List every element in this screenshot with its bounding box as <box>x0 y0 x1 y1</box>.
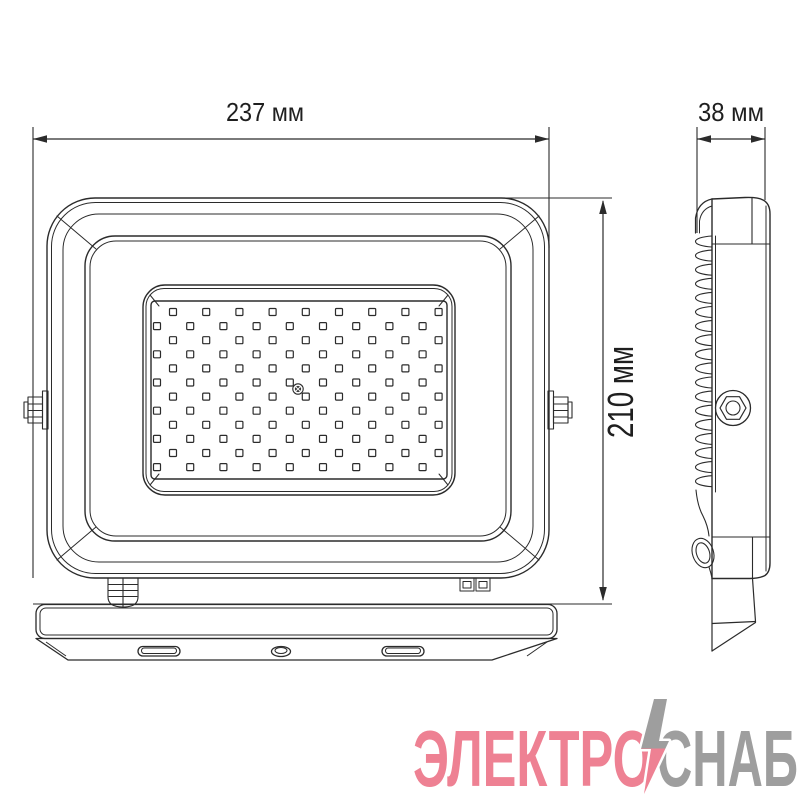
led-chip <box>154 435 161 442</box>
led-chip <box>236 365 243 372</box>
heatsink-fin <box>696 349 713 360</box>
led-chip <box>419 379 426 386</box>
heatsink-fin <box>696 292 713 303</box>
arrowhead-left-icon <box>33 135 47 143</box>
led-chip <box>302 337 309 344</box>
side-housing-outline <box>712 197 770 578</box>
led-chip <box>154 379 161 386</box>
led-chip <box>154 464 161 471</box>
heatsink-fin <box>696 377 713 388</box>
led-chip <box>369 309 376 316</box>
led-chip <box>286 464 293 471</box>
led-chip <box>302 421 309 428</box>
led-chip <box>435 337 442 344</box>
led-chip <box>253 351 260 358</box>
led-chip <box>203 450 210 457</box>
led-chip <box>353 379 360 386</box>
heatsink-fin <box>696 462 713 473</box>
depth-dimension-label: 38 мм <box>698 97 764 127</box>
led-chip <box>386 351 393 358</box>
heatsink-fin <box>696 307 713 318</box>
led-chip <box>419 435 426 442</box>
led-chip <box>302 450 309 457</box>
led-chip <box>269 421 276 428</box>
led-chip <box>353 351 360 358</box>
led-chip <box>187 435 194 442</box>
led-chip <box>220 323 227 330</box>
led-chip <box>402 365 409 372</box>
led-chip <box>154 407 161 414</box>
led-chip <box>253 323 260 330</box>
led-chip <box>220 435 227 442</box>
led-chip <box>435 450 442 457</box>
led-chip <box>236 309 243 316</box>
led-chip <box>269 450 276 457</box>
led-chip <box>369 393 376 400</box>
led-chip <box>187 379 194 386</box>
led-chip <box>286 435 293 442</box>
led-chip <box>170 450 177 457</box>
led-chip <box>236 421 243 428</box>
led-chip <box>402 450 409 457</box>
knob-left <box>24 391 48 429</box>
led-chip <box>220 464 227 471</box>
led-chip <box>187 351 194 358</box>
led-chip <box>320 323 327 330</box>
terminal-clip <box>460 578 490 591</box>
heatsink-fin <box>696 278 713 289</box>
led-chip <box>369 421 376 428</box>
led-chip <box>320 464 327 471</box>
led-chip <box>369 365 376 372</box>
led-chip <box>369 450 376 457</box>
bracket-base <box>36 605 557 661</box>
led-chip <box>286 379 293 386</box>
led-chip <box>386 323 393 330</box>
led-chip <box>154 351 161 358</box>
center-screw <box>293 384 303 394</box>
led-chip <box>236 337 243 344</box>
arrowhead-right-icon <box>751 135 765 143</box>
led-chip <box>269 393 276 400</box>
led-chip <box>170 393 177 400</box>
heatsink-fin <box>696 321 713 332</box>
height-dimension-label: 210 мм <box>600 346 641 438</box>
arrowhead-right-icon <box>535 135 549 143</box>
led-chip <box>419 323 426 330</box>
led-chip <box>386 379 393 386</box>
led-chip <box>336 365 343 372</box>
heatsink-fin <box>696 419 713 430</box>
led-chip <box>402 393 409 400</box>
knob-right <box>548 391 572 429</box>
watermark-logo: ЭЛЕКТРО СНАБ <box>413 699 798 800</box>
led-chip <box>203 421 210 428</box>
led-chip <box>302 393 309 400</box>
led-chip <box>203 309 210 316</box>
led-chip <box>187 407 194 414</box>
led-chip <box>154 323 161 330</box>
heatsink-fin <box>696 433 713 444</box>
arrowhead-left-icon <box>697 135 711 143</box>
heatsink-fin <box>696 264 713 275</box>
led-chip <box>269 309 276 316</box>
led-chip <box>353 323 360 330</box>
led-module <box>143 285 455 495</box>
led-chip <box>253 379 260 386</box>
heatsink-fin <box>696 448 713 459</box>
arrowhead-down-icon <box>599 587 607 601</box>
cable-gland <box>108 578 138 607</box>
dimension-width: 237 мм <box>33 97 549 143</box>
led-chip <box>353 464 360 471</box>
led-chip <box>435 421 442 428</box>
led-chip <box>170 337 177 344</box>
led-chip <box>336 337 343 344</box>
led-chip <box>402 309 409 316</box>
led-chip <box>220 407 227 414</box>
led-chip <box>170 421 177 428</box>
led-chip <box>170 365 177 372</box>
dimension-depth: 38 мм <box>697 97 765 143</box>
led-chip <box>236 393 243 400</box>
led-chip <box>203 337 210 344</box>
width-dimension-label: 237 мм <box>226 97 304 127</box>
heatsink-fin <box>696 405 713 416</box>
led-chip <box>236 450 243 457</box>
led-chip <box>170 309 177 316</box>
side-view <box>688 197 770 651</box>
side-hex-knob <box>716 391 751 426</box>
led-chip <box>302 309 309 316</box>
front-view <box>24 198 572 607</box>
led-chip <box>187 464 194 471</box>
arrowhead-up-icon <box>599 200 607 214</box>
led-chip <box>320 379 327 386</box>
heatsink-fin <box>696 335 713 346</box>
led-chip <box>386 407 393 414</box>
bracket-front-lip <box>36 639 557 661</box>
led-chip <box>203 393 210 400</box>
led-chip <box>402 421 409 428</box>
led-chip <box>320 351 327 358</box>
led-chip <box>419 407 426 414</box>
led-chip <box>336 421 343 428</box>
side-bracket-arm <box>712 579 756 652</box>
led-chip <box>286 323 293 330</box>
dimension-height: 210 мм <box>599 200 641 601</box>
led-chip <box>336 450 343 457</box>
led-chip <box>419 464 426 471</box>
led-chip <box>320 407 327 414</box>
led-chip <box>286 351 293 358</box>
led-chip <box>286 407 293 414</box>
led-chip <box>353 407 360 414</box>
led-chip <box>386 464 393 471</box>
page: 237 мм 38 мм 210 мм ЭЛЕКТРО СНАБ <box>0 0 800 800</box>
led-chip <box>269 337 276 344</box>
bracket-back-plate <box>36 605 557 639</box>
heatsink-fin <box>696 391 713 402</box>
watermark-text-secondary: СНАБ <box>657 714 798 800</box>
watermark-text-primary: ЭЛЕКТРО <box>413 714 652 800</box>
fin-stack <box>696 236 713 487</box>
led-chip <box>419 351 426 358</box>
led-chip <box>302 365 309 372</box>
cable-gland-side <box>688 535 717 570</box>
led-chip <box>369 337 376 344</box>
led-chip <box>402 337 409 344</box>
led-chip <box>435 393 442 400</box>
led-chip <box>220 379 227 386</box>
led-chip <box>353 435 360 442</box>
led-chip <box>253 435 260 442</box>
led-chip <box>386 435 393 442</box>
heatsink-fin <box>696 476 713 487</box>
led-chip <box>253 464 260 471</box>
led-chip <box>336 393 343 400</box>
led-chip <box>336 309 343 316</box>
led-chip <box>187 323 194 330</box>
technical-drawing: 237 мм 38 мм 210 мм ЭЛЕКТРО СНАБ <box>0 0 800 800</box>
led-chip <box>435 365 442 372</box>
led-chip <box>320 435 327 442</box>
heatsink-fin <box>696 236 713 247</box>
heatsink-fin <box>696 363 713 374</box>
heatsink-fin <box>696 250 713 261</box>
led-chip <box>253 407 260 414</box>
led-chip <box>269 365 276 372</box>
led-chip <box>435 309 442 316</box>
led-chip <box>203 365 210 372</box>
led-chip <box>220 351 227 358</box>
